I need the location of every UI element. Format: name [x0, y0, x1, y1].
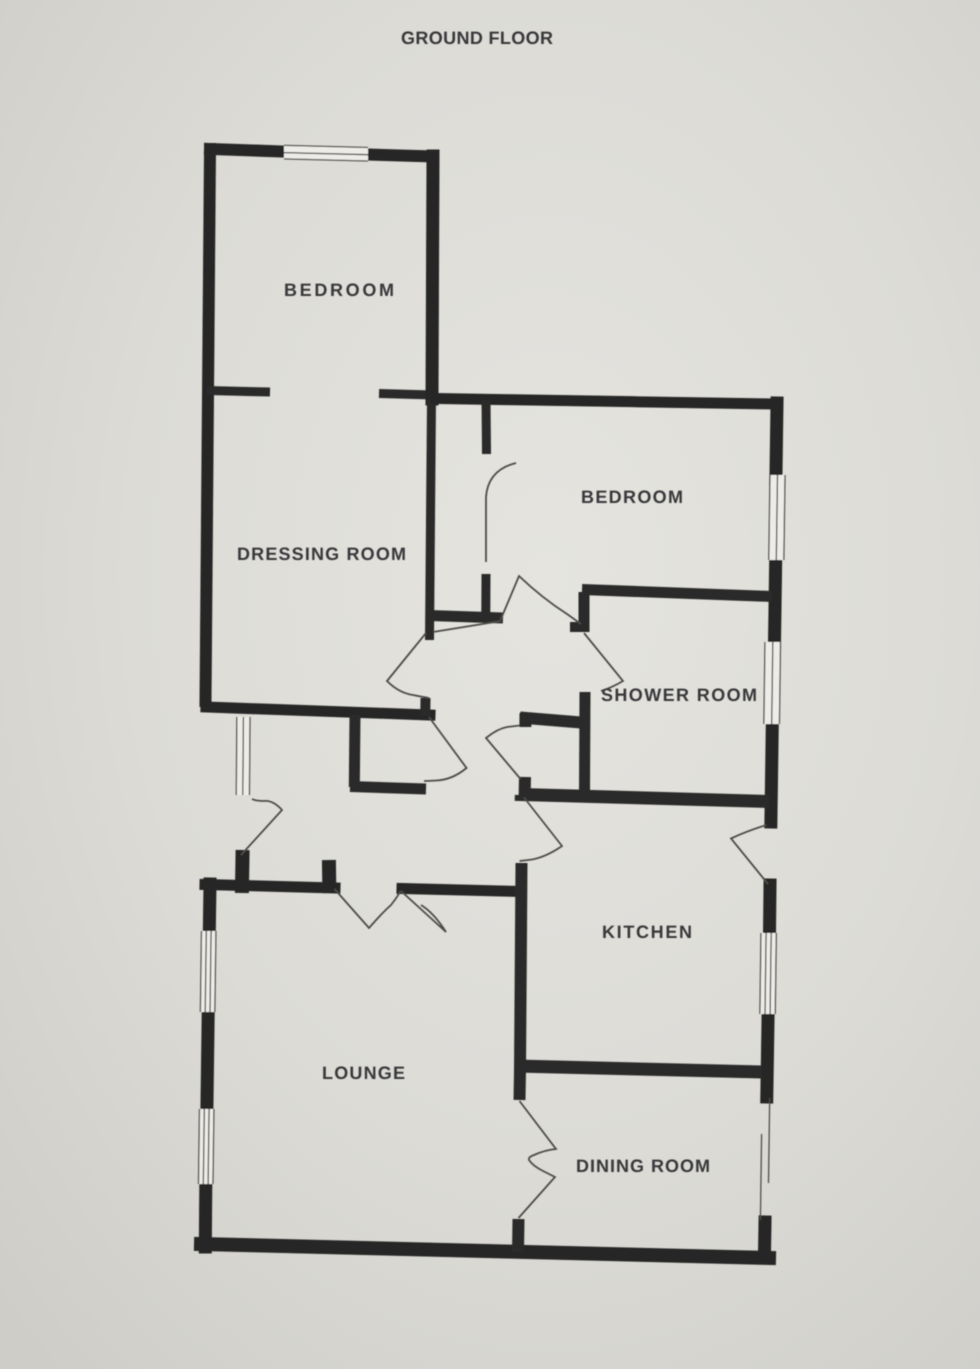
svg-text:BEDROOM: BEDROOM: [581, 487, 683, 507]
svg-text:DINING ROOM: DINING ROOM: [576, 1156, 710, 1176]
svg-text:DRESSING ROOM: DRESSING ROOM: [237, 544, 406, 564]
svg-text:SHOWER ROOM: SHOWER ROOM: [601, 685, 757, 705]
svg-text:LOUNGE: LOUNGE: [322, 1063, 405, 1083]
svg-text:GROUND FLOOR: GROUND FLOOR: [401, 28, 553, 48]
